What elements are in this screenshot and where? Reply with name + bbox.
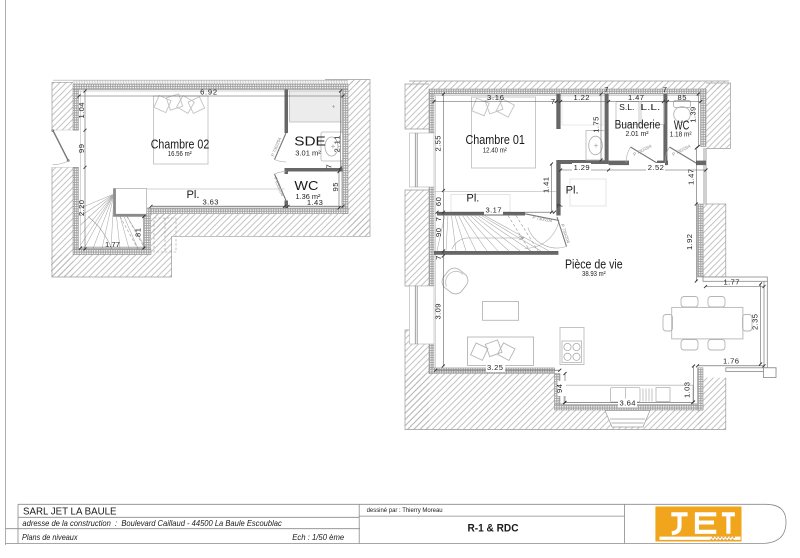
svg-text:60: 60 [434, 197, 443, 206]
svg-text:S.L.: S.L. [619, 102, 634, 112]
svg-text:adresse de la construction :: adresse de la construction : Boulevard C… [22, 519, 281, 528]
svg-text:6.92: 6.92 [200, 88, 217, 97]
svg-text:85: 85 [678, 93, 687, 102]
svg-text:L.L.: L.L. [641, 102, 661, 112]
svg-text:dessiné par : Thierry Moreau: dessiné par : Thierry Moreau [367, 507, 444, 514]
svg-text:Pl.: Pl. [466, 193, 479, 205]
svg-text:99: 99 [77, 144, 86, 153]
svg-text:1.18 m²: 1.18 m² [670, 131, 693, 138]
svg-text:1.29: 1.29 [574, 163, 590, 172]
svg-text:Chambre 01: Chambre 01 [466, 133, 525, 147]
svg-text:Chambre 02: Chambre 02 [151, 138, 210, 152]
svg-text:7: 7 [555, 204, 564, 208]
svg-text:81: 81 [134, 228, 143, 237]
svg-text:95: 95 [331, 183, 340, 192]
svg-text:3.17: 3.17 [486, 206, 502, 215]
svg-text:12.40 m²: 12.40 m² [483, 147, 508, 154]
svg-text:Plans de niveaux: Plans de niveaux [22, 532, 78, 542]
svg-text:1.47: 1.47 [687, 169, 696, 185]
svg-text:1.47: 1.47 [628, 93, 644, 102]
svg-text:3.01 m²: 3.01 m² [295, 150, 321, 157]
svg-text:2.55: 2.55 [434, 136, 443, 152]
svg-text:94: 94 [555, 384, 564, 393]
svg-text:1.36 m²: 1.36 m² [296, 194, 322, 201]
svg-text:90: 90 [434, 228, 443, 237]
svg-text:R-1 & RDC: R-1 & RDC [468, 523, 519, 535]
svg-text:Pl.: Pl. [566, 185, 579, 197]
svg-text:38.93 m²: 38.93 m² [582, 271, 606, 278]
svg-text:3.63: 3.63 [203, 198, 219, 207]
svg-text:1.77: 1.77 [105, 240, 120, 249]
svg-text:1.92: 1.92 [685, 234, 694, 250]
svg-text:Pièce de vie: Pièce de vie [565, 257, 623, 271]
svg-text:3.16: 3.16 [487, 93, 504, 102]
svg-text:3.64: 3.64 [620, 398, 636, 407]
svg-text:Ech : 1/50 ème: Ech : 1/50 ème [292, 532, 344, 542]
svg-text:Pl.: Pl. [187, 189, 200, 201]
svg-text:1.22: 1.22 [574, 93, 590, 102]
svg-text:3.09: 3.09 [434, 304, 443, 320]
svg-text:2.35: 2.35 [751, 314, 760, 330]
svg-text:1.39: 1.39 [689, 107, 698, 123]
svg-text:2.01 m²: 2.01 m² [626, 131, 650, 138]
svg-text:3.25: 3.25 [487, 363, 503, 372]
svg-text:SDE: SDE [294, 135, 326, 149]
svg-text:1.77: 1.77 [724, 278, 740, 287]
svg-text:1.75: 1.75 [591, 117, 600, 133]
svg-text:SARL JET LA BAULE: SARL JET LA BAULE [23, 506, 117, 517]
svg-text:7: 7 [434, 217, 443, 221]
svg-text:7: 7 [663, 85, 667, 94]
svg-text:7: 7 [604, 85, 608, 94]
svg-text:2.11: 2.11 [333, 136, 342, 153]
svg-text:WC: WC [294, 179, 318, 193]
svg-text:7: 7 [434, 256, 443, 260]
svg-text:2.20: 2.20 [77, 200, 86, 216]
svg-text:1.76: 1.76 [723, 357, 739, 366]
svg-text:1.41: 1.41 [542, 177, 551, 193]
svg-text:2.52: 2.52 [648, 163, 664, 172]
svg-text:7: 7 [551, 97, 555, 106]
svg-text:1.04: 1.04 [77, 103, 86, 119]
svg-text:Buanderie: Buanderie [615, 120, 661, 132]
svg-text:7: 7 [325, 164, 334, 168]
svg-text:16.56 m²: 16.56 m² [168, 151, 193, 158]
svg-text:1.03: 1.03 [683, 382, 692, 398]
